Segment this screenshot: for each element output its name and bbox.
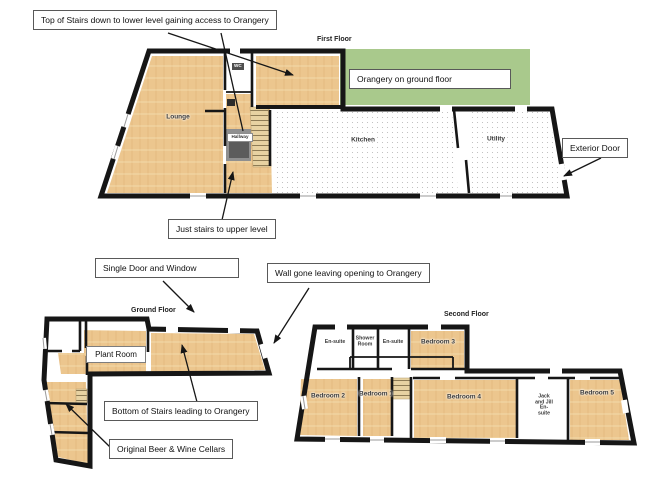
room-label-bedroom-3: Bedroom 3	[421, 338, 455, 345]
ground-right-wing-floor	[151, 333, 265, 372]
dining-room-floor	[256, 56, 339, 105]
ground-floor-title: Ground Floor	[131, 307, 176, 314]
room-label-lounge: Lounge	[166, 113, 189, 120]
room-label-utility: Utility	[487, 135, 505, 142]
room-label-hallway: Hallway	[227, 133, 253, 142]
first-floor-title: First Floor	[317, 36, 352, 43]
callout-single-door-window: Single Door and Window	[95, 258, 239, 278]
arrow-exterior-door	[564, 158, 601, 176]
room-label-bedroom-5: Bedroom 5	[580, 389, 614, 396]
callout-top-of-stairs: Top of Stairs down to lower level gainin…	[33, 10, 277, 30]
room-label-ensuite-1: En-suite	[325, 340, 345, 346]
floorplan-diagram: First Floor Ground Floor Second Floor To…	[0, 0, 670, 478]
callout-orangery: Orangery on ground floor	[349, 69, 511, 89]
first-floor-stairs	[250, 107, 271, 167]
room-label-bedroom-1: Bedroom 1	[359, 390, 393, 397]
floorplan-svg	[0, 0, 670, 478]
kitchen-floor	[273, 112, 458, 193]
room-label-bedroom-2: Bedroom 2	[311, 392, 345, 399]
room-label-jack-and-jill: Jack and Jill En-suite	[534, 395, 554, 418]
room-label-bedroom-4: Bedroom 4	[447, 393, 481, 400]
arrow-wall-gone	[274, 288, 309, 343]
second-floor-title: Second Floor	[444, 311, 489, 318]
second-floor-stairs	[393, 378, 410, 399]
callout-wall-gone: Wall gone leaving opening to Orangery	[267, 263, 430, 283]
utility-floor	[469, 112, 562, 193]
callout-just-stairs: Just stairs to upper level	[168, 219, 276, 239]
room-label-wc: WC	[232, 63, 244, 70]
callout-cellars: Original Beer & Wine Cellars	[109, 439, 233, 459]
hall-door	[227, 99, 235, 106]
room-label-kitchen: Kitchen	[351, 136, 375, 143]
bedroom3-floor	[411, 331, 464, 368]
room-label-ensuite-2: En-suite	[383, 340, 403, 346]
callout-bottom-of-stairs: Bottom of Stairs leading to Orangery	[104, 401, 258, 421]
callout-exterior-door: Exterior Door	[562, 138, 628, 158]
second-floor-plan	[297, 327, 634, 443]
cellar-stairs	[76, 389, 87, 403]
room-label-shower-room: Shower Room	[353, 336, 377, 347]
ground-corridor-floor	[58, 353, 88, 374]
bedroom4-floor	[414, 380, 516, 438]
bedroom1-floor	[363, 379, 391, 436]
plant-room-label: Plant Room	[86, 346, 146, 363]
